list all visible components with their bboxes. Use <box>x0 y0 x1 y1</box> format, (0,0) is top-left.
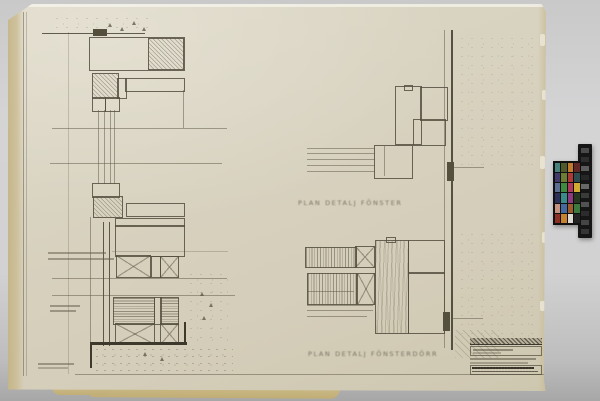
color-calibration-target <box>553 144 592 238</box>
color-patch <box>561 163 567 172</box>
stamp-scribble <box>38 367 68 369</box>
frame-rect <box>420 87 448 121</box>
triangle-mark <box>202 316 206 320</box>
masonry-stipple <box>457 230 533 342</box>
gray-patch <box>581 166 589 171</box>
color-patch <box>574 204 580 213</box>
edge-chip <box>542 232 546 243</box>
window-leaf <box>374 145 413 179</box>
edge-chip <box>540 301 545 311</box>
note-scribble <box>48 258 114 260</box>
title-block-text-line <box>473 349 513 351</box>
threshold-line <box>307 305 373 306</box>
gray-patch <box>581 184 589 189</box>
color-patch <box>574 163 580 172</box>
glass-line <box>307 148 375 149</box>
member-hatch <box>307 273 357 305</box>
gray-patch <box>581 202 589 207</box>
color-patch <box>574 173 580 182</box>
color-patch <box>574 214 580 223</box>
glass-line <box>307 165 375 166</box>
scan-background: PLAN DETALJ FÖNSTER PLAN DETALJ FÖNSTERD… <box>0 0 600 401</box>
color-patch <box>568 193 574 202</box>
gray-patch <box>581 193 589 198</box>
floor-line <box>50 163 222 164</box>
threshold-line <box>307 310 373 311</box>
note-scribble <box>50 305 80 307</box>
foundation-line <box>90 342 187 345</box>
color-patch <box>555 183 561 192</box>
frame-rect <box>105 97 120 112</box>
wall-line <box>451 30 453 350</box>
member-hatch <box>305 247 357 268</box>
color-patch <box>555 214 561 223</box>
x-brace-mark <box>116 255 151 278</box>
hatch-fill <box>92 73 119 99</box>
sill-line <box>454 167 484 168</box>
gray-patch <box>581 157 589 162</box>
gray-patch <box>581 175 589 180</box>
frame-rect <box>115 225 185 257</box>
hatch-fill <box>148 38 184 70</box>
color-patch-grid <box>553 161 581 225</box>
edge-line <box>90 217 91 345</box>
edge-chip <box>542 90 546 100</box>
color-patch <box>568 214 574 223</box>
x-brace-mark <box>357 273 375 305</box>
color-patch <box>568 163 574 172</box>
edge-chip <box>540 34 545 46</box>
mullion-line <box>104 110 105 184</box>
frame-rect <box>408 240 445 274</box>
triangle-mark <box>209 303 213 307</box>
margin-line <box>23 12 24 376</box>
title-block-text-line <box>470 358 536 360</box>
color-patch <box>561 183 567 192</box>
color-patch <box>561 214 567 223</box>
triangle-mark <box>108 23 112 27</box>
notch-mark <box>404 85 413 91</box>
member-divider <box>308 291 354 292</box>
frame-rect <box>125 78 185 92</box>
title-block-text-line <box>473 352 501 354</box>
glass-line <box>307 159 375 160</box>
sill-line <box>452 318 483 319</box>
mullion-line <box>110 110 111 184</box>
color-patch <box>574 183 580 192</box>
title-block-address-line <box>472 371 538 372</box>
gray-patch <box>581 229 589 234</box>
fold-crease <box>68 32 69 374</box>
title-block-row <box>470 346 542 356</box>
color-patch <box>561 204 567 213</box>
triangle-mark <box>160 357 164 361</box>
color-patch <box>568 183 574 192</box>
wood-grain-fill <box>375 240 409 334</box>
color-patch <box>555 173 561 182</box>
sheet-left-edge <box>8 4 24 391</box>
margin-line <box>26 12 27 376</box>
gray-patch <box>581 220 589 225</box>
mullion-line <box>114 110 115 184</box>
color-patch <box>555 163 561 172</box>
glass-line <box>307 171 375 172</box>
leaf-divider <box>384 146 385 176</box>
gray-patch <box>581 211 589 216</box>
stamp-scribble <box>38 363 74 365</box>
filled-profile <box>443 312 450 331</box>
triangle-mark <box>132 21 136 25</box>
caption-handwritten: PLAN DETALJ FÖNSTERDÖRR <box>308 350 438 357</box>
sheet-top-highlight <box>28 4 544 7</box>
note-scribble <box>48 252 106 254</box>
masonry-stipple <box>457 34 535 166</box>
threshold-line <box>307 316 367 317</box>
glass-line <box>307 153 375 154</box>
filled-profile <box>447 162 454 181</box>
louvre-hatch <box>160 297 179 325</box>
triangle-mark <box>142 27 146 31</box>
title-block-firm-name <box>472 367 534 369</box>
filled-profile <box>93 29 107 36</box>
note-scribble <box>50 310 76 312</box>
frame-rect <box>413 119 446 146</box>
frame-post-line <box>103 222 110 346</box>
hatch-fill <box>93 196 123 218</box>
color-patch <box>555 193 561 202</box>
caption-handwritten: PLAN DETALJ FÖNSTER <box>298 199 403 206</box>
notch-mark <box>386 237 396 243</box>
color-patch <box>555 204 561 213</box>
color-patch <box>568 204 574 213</box>
louvre-hatch <box>113 297 155 325</box>
drawing-sheet: PLAN DETALJ FÖNSTER PLAN DETALJ FÖNSTERD… <box>8 4 546 391</box>
triangle-mark <box>200 292 204 296</box>
triangle-mark <box>120 27 124 31</box>
triangle-mark <box>143 352 147 356</box>
color-patch <box>561 173 567 182</box>
mullion-line <box>98 110 99 184</box>
sheet-right-edge <box>538 4 546 391</box>
leader-line <box>112 251 228 252</box>
x-brace-mark <box>355 246 375 268</box>
edge-line <box>183 90 184 128</box>
color-patch <box>568 173 574 182</box>
x-brace-mark <box>160 256 179 278</box>
floor-line <box>52 128 227 129</box>
edge-chip <box>540 156 545 169</box>
frame-rect <box>126 203 185 217</box>
frame-rect <box>408 272 445 334</box>
title-block-header <box>470 338 542 345</box>
color-patch <box>574 193 580 202</box>
gray-patch <box>581 148 589 153</box>
stipple-texture <box>186 270 230 344</box>
title-block-text-line <box>470 362 528 364</box>
color-patch <box>561 193 567 202</box>
